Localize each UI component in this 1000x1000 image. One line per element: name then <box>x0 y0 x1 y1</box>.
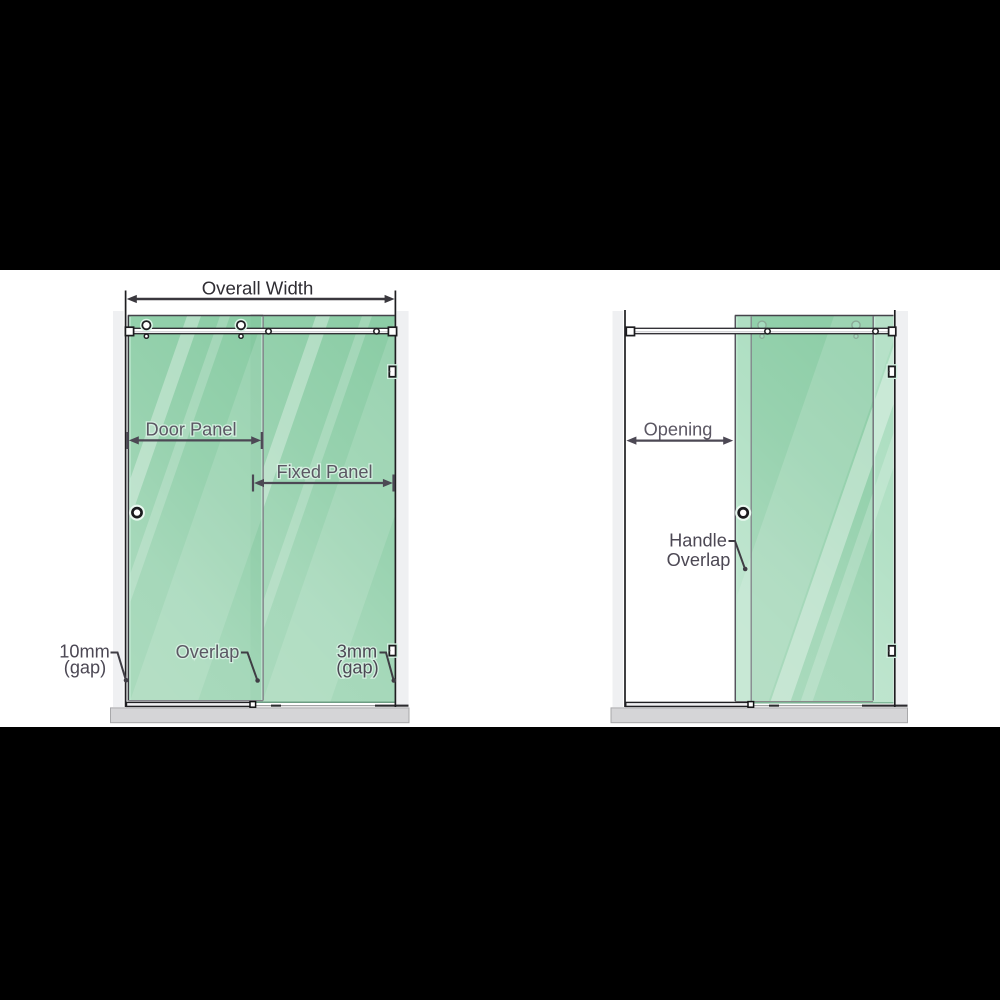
svg-text:Overlap: Overlap <box>176 642 240 662</box>
svg-text:Handle: Handle <box>669 531 727 551</box>
svg-text:(gap): (gap) <box>64 657 106 677</box>
svg-text:Opening: Opening <box>644 420 713 440</box>
svg-text:Fixed Panel: Fixed Panel <box>276 462 372 482</box>
svg-text:(gap): (gap) <box>336 657 378 677</box>
svg-text:Overall Width: Overall Width <box>202 278 314 299</box>
svg-text:Door Panel: Door Panel <box>146 420 237 440</box>
svg-text:Overlap: Overlap <box>667 550 731 570</box>
